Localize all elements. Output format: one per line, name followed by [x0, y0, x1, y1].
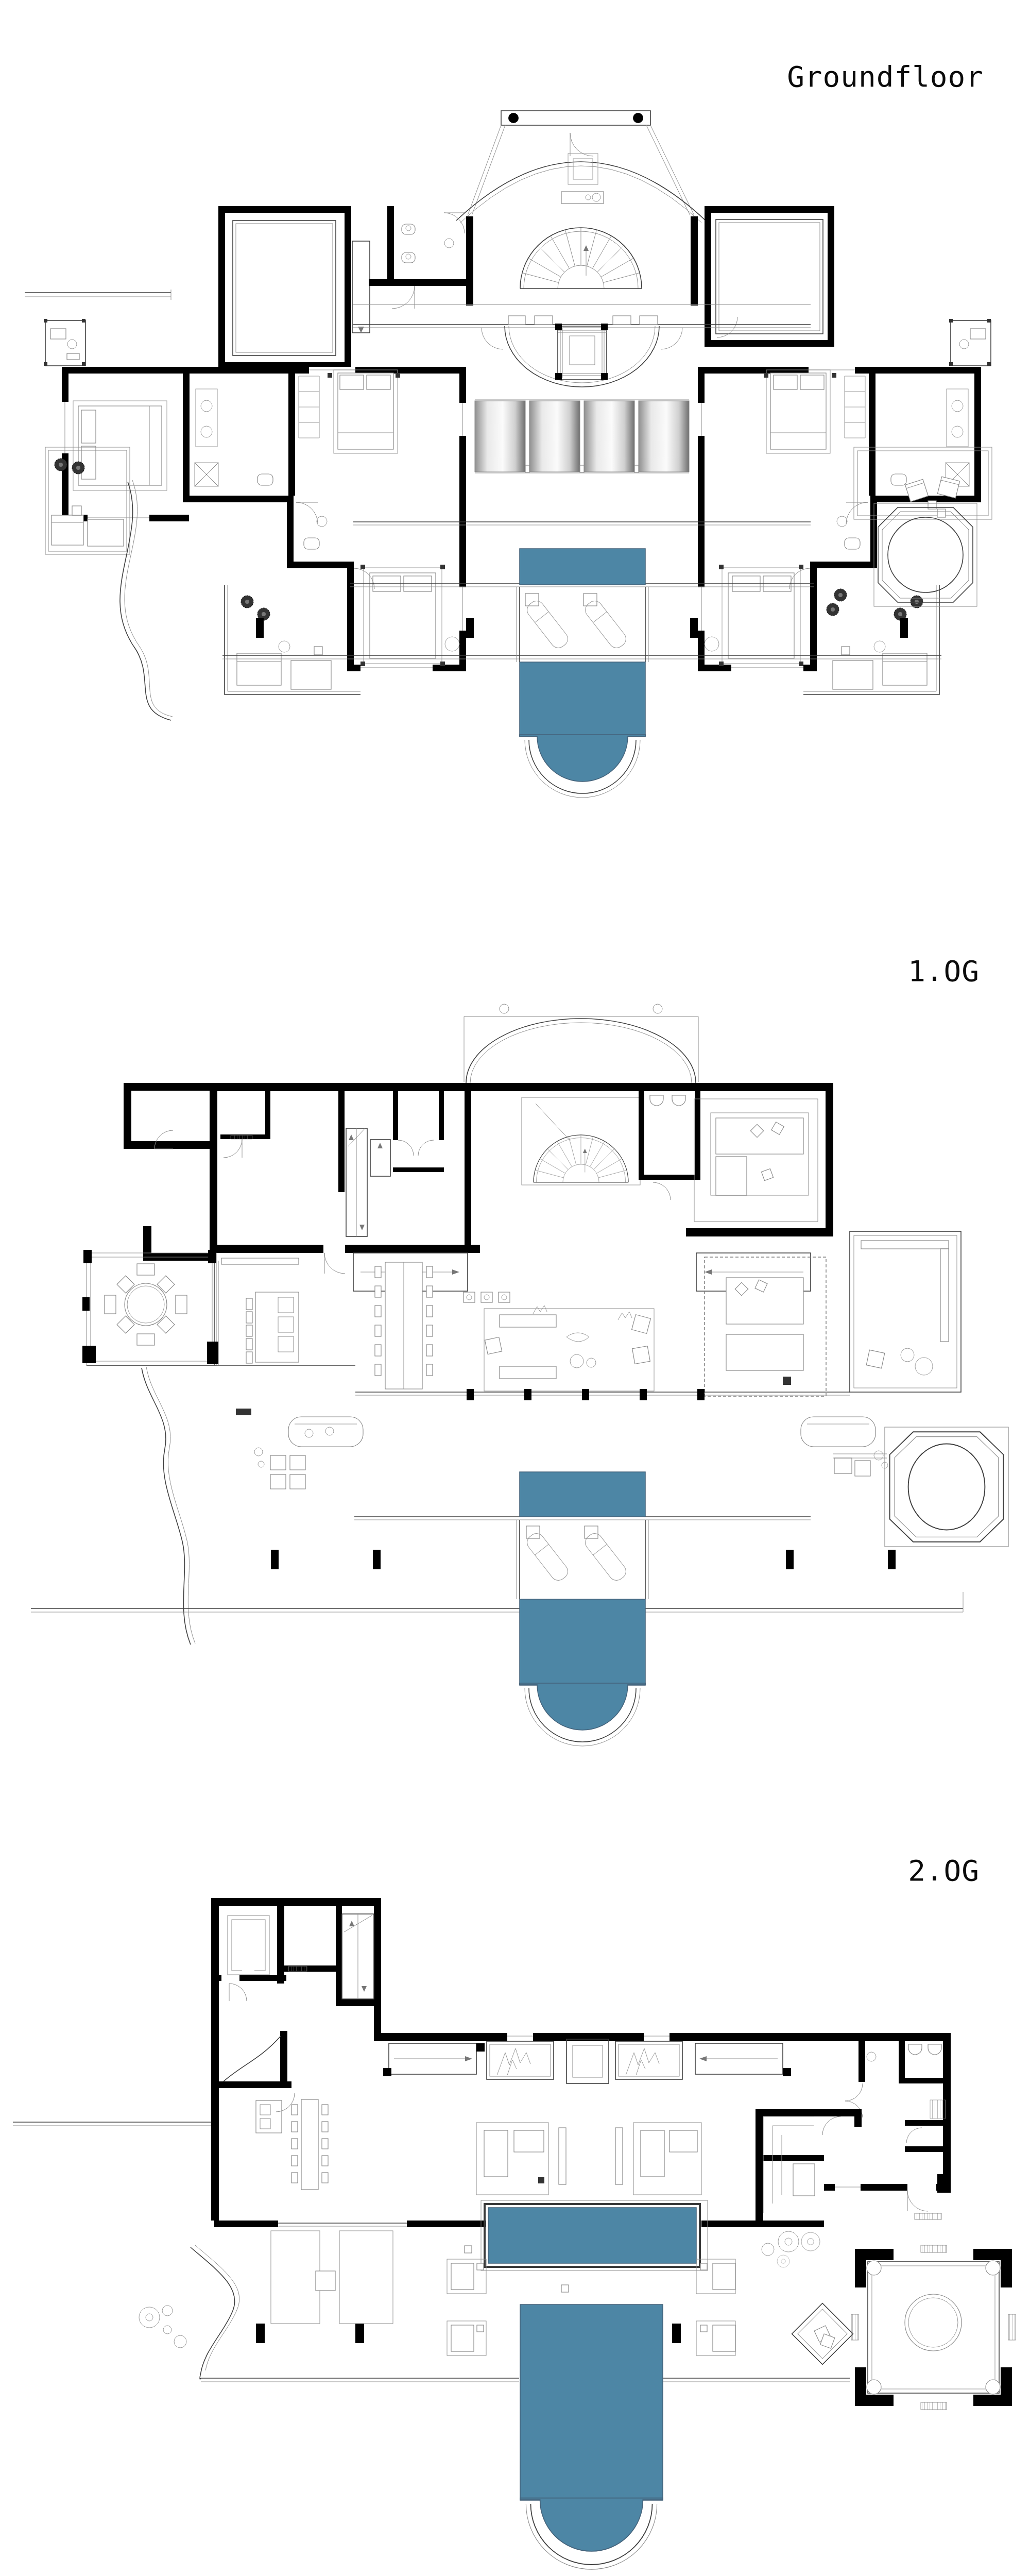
- service-rooms: [369, 206, 467, 309]
- louver-panel-wall: [475, 400, 689, 473]
- roof-lounge: [694, 1099, 818, 1222]
- media-room: [756, 2109, 862, 2227]
- spiral-staircase: [520, 228, 642, 289]
- octagonal-pavilion: [874, 503, 977, 606]
- swimming-pool: [517, 549, 648, 798]
- garden-pavilion: [851, 2213, 1016, 2410]
- site-boundary-lines: [31, 1592, 963, 1612]
- upper-floor-block: [124, 1083, 833, 1274]
- upper-bar-band: [214, 2033, 951, 2227]
- floor-label-groundfloor: Groundfloor: [787, 60, 984, 93]
- lap-pool: [481, 2200, 708, 2270]
- left-outer-bedroom: [62, 367, 189, 521]
- floor-label-first-floor: 1.OG: [908, 954, 980, 988]
- second-floor-plan-section: 2.OG: [0, 1803, 1030, 2576]
- floor-label-second-floor: 2.OG: [908, 1854, 980, 1887]
- spiral-staircase: [522, 1097, 640, 1185]
- far-left-room: [44, 319, 85, 366]
- diamond-rug: [792, 2303, 853, 2365]
- bottom-left-terrace: [225, 585, 360, 694]
- second-floor-floorplan: [0, 1803, 1030, 2576]
- pool-terrace: [222, 522, 941, 659]
- first-floor-plan-section: 1.OG: [0, 902, 1030, 1803]
- groundfloor-floorplan: [0, 0, 1030, 902]
- great-room: [375, 1262, 654, 1391]
- bedroom-wing: [183, 367, 466, 671]
- portico-roof-outline: [464, 1004, 698, 1083]
- courtyard-room: [218, 206, 370, 369]
- curved-garden-path: [191, 2245, 239, 2379]
- site-boundary-lines: [25, 290, 171, 300]
- entrance-hall: [466, 154, 698, 306]
- south-wall: [824, 2184, 947, 2211]
- far-right-room: [949, 319, 991, 366]
- entrance-portico: [456, 111, 706, 223]
- grand-stairs: [221, 1253, 811, 1291]
- swimming-pool: [517, 1472, 648, 1746]
- groundfloor-plan-section: Groundfloor: [0, 0, 1030, 902]
- upper-right-room: [705, 206, 834, 347]
- curved-garden-path: [142, 1367, 195, 1645]
- right-lounge-terrace: [827, 447, 992, 616]
- bridge: [555, 324, 608, 380]
- first-floor-floorplan: [0, 902, 1030, 1803]
- outdoor-dining-pavilion: [82, 1250, 355, 1365]
- stair-core-block: [211, 1898, 381, 2221]
- right-sitting-room: [850, 1231, 961, 1392]
- swimming-pool: [520, 2304, 663, 2569]
